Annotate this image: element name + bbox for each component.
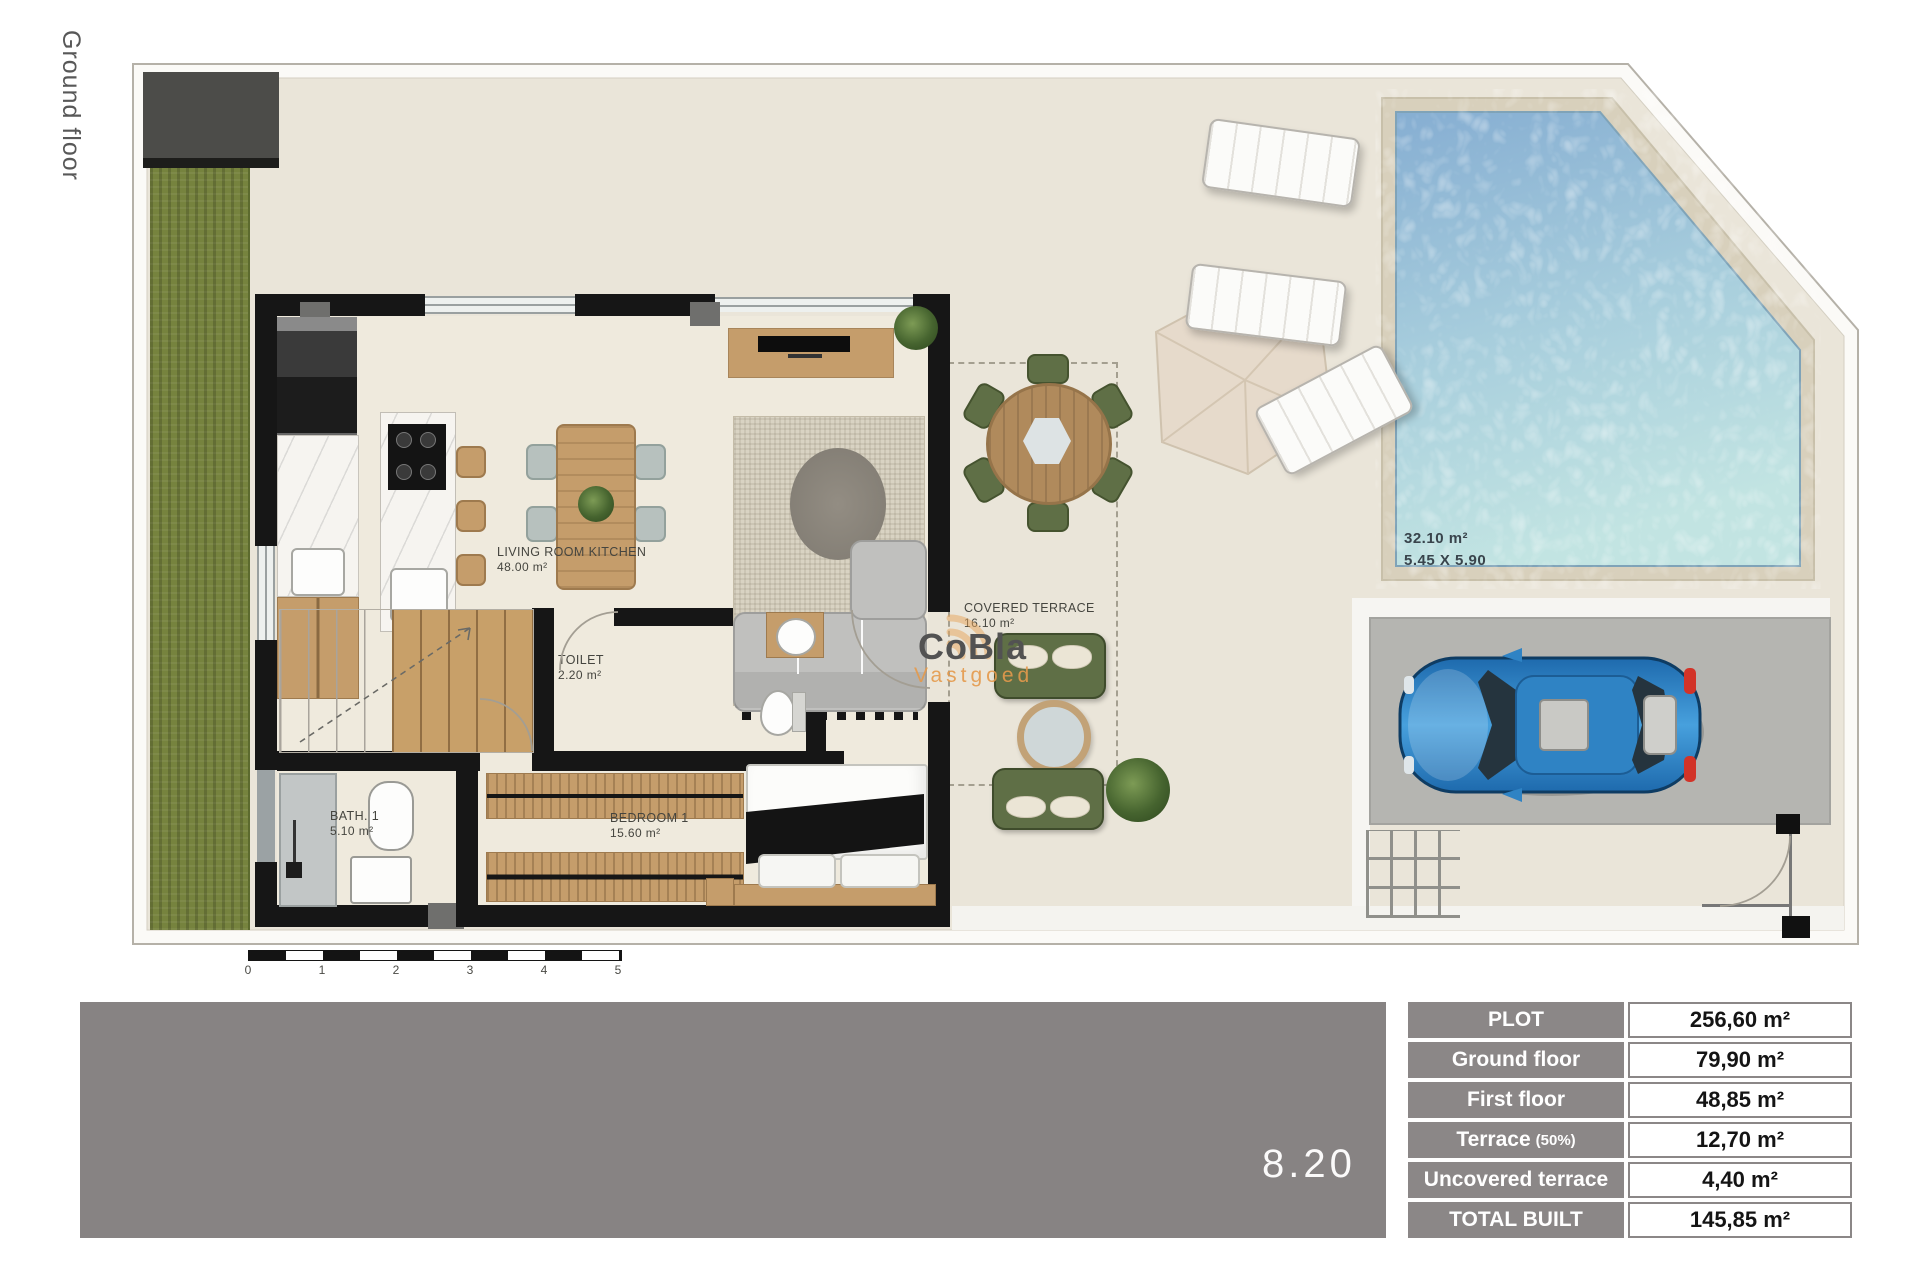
shower-pipe <box>293 820 296 866</box>
shower <box>279 773 337 907</box>
outdoor-stairs <box>1366 830 1460 918</box>
car <box>1400 648 1704 802</box>
gate-post <box>1776 814 1800 834</box>
wc <box>760 690 796 736</box>
watermark-subtitle: Vastgoed <box>914 664 1033 688</box>
table-row-value: 4,40 m² <box>1628 1162 1852 1198</box>
car-rear-glass <box>1644 696 1676 754</box>
room-label-toilet: TOILET 2.20 m² <box>558 652 604 684</box>
room-label-living: LIVING ROOM KITCHEN 48.00 m² <box>497 544 646 576</box>
scale-tick: 4 <box>541 963 548 977</box>
scale-tick: 0 <box>245 963 252 977</box>
floor-title: Ground floor <box>56 30 85 181</box>
scale-tick: 1 <box>319 963 326 977</box>
bath-sink <box>350 856 412 904</box>
plant <box>578 486 614 522</box>
toilet-sink <box>776 618 816 656</box>
floorplan-page: Ground floor LIVING ROOM KITCHEN 48.00 m… <box>0 0 1920 1280</box>
window <box>257 546 275 640</box>
pool-water-texture <box>1396 112 1800 566</box>
bottom-panel: 8.20 <box>80 1002 1386 1238</box>
dining-chair <box>526 444 558 480</box>
table-row-value: 12,70 m² <box>1628 1122 1852 1158</box>
table-row-label: Uncovered terrace <box>1408 1162 1624 1198</box>
table-row-label: PLOT <box>1408 1002 1624 1038</box>
wc-cistern <box>792 692 806 732</box>
dining-chair <box>634 444 666 480</box>
scale-tick: 5 <box>615 963 622 977</box>
pillow <box>758 854 836 888</box>
table-row-value: 48,85 m² <box>1628 1082 1852 1118</box>
wall-segment <box>532 608 554 753</box>
scale-bar <box>248 950 622 961</box>
wall-segment <box>277 751 480 771</box>
cooktop <box>388 424 446 490</box>
terrace-chair <box>1027 354 1069 384</box>
table-row-value: 145,85 m² <box>1628 1202 1852 1238</box>
terrace-chair <box>1027 502 1069 532</box>
kitchen-sink <box>291 548 345 596</box>
stairs <box>279 609 534 753</box>
coffee-table <box>1017 700 1091 774</box>
shower-head <box>286 862 302 878</box>
entry-pad <box>143 72 279 168</box>
tv-stand <box>788 354 822 358</box>
table-row-value: 79,90 m² <box>1628 1042 1852 1078</box>
table-row-label: TOTAL BUILT <box>1408 1202 1624 1238</box>
room-label-bath: BATH. 1 5.10 m² <box>330 808 379 840</box>
dining-chair <box>634 506 666 542</box>
stairs-wood-flight <box>392 610 533 752</box>
gate-line <box>1702 904 1790 907</box>
bar-stool <box>456 500 486 532</box>
outdoor-sofa <box>992 768 1104 830</box>
pool-label: 32.10 m² 5.45 X 5.90 <box>1404 528 1486 572</box>
car-sunroof <box>1540 700 1588 750</box>
sofa <box>733 612 927 712</box>
grass-strip <box>150 158 250 930</box>
bar-stool <box>456 554 486 586</box>
window <box>425 296 575 314</box>
car-taillight <box>1684 668 1696 694</box>
plant <box>1106 758 1170 822</box>
areas-table: PLOT 256,60 m² Ground floor 79,90 m² Fir… <box>1408 1002 1852 1238</box>
gate-post <box>1782 916 1810 938</box>
scale-tick: 2 <box>393 963 400 977</box>
pool-dimensions: 5.45 X 5.90 <box>1404 550 1486 572</box>
plant <box>894 306 938 350</box>
watermark-name: CoBla <box>918 626 1027 668</box>
pillar <box>690 302 720 326</box>
parking-kerb-top <box>1352 598 1830 618</box>
table-row-label: Ground floor <box>1408 1042 1624 1078</box>
nightstand <box>706 878 734 906</box>
bar-stool <box>456 446 486 478</box>
table-row-label: First floor <box>1408 1082 1624 1118</box>
sofa-chaise <box>850 540 927 620</box>
wall-segment <box>255 640 277 770</box>
wall-segment <box>255 294 277 546</box>
table-row-label: Terrace(50%) <box>1408 1122 1624 1158</box>
dining-chair <box>526 506 558 542</box>
oven <box>277 377 357 436</box>
wall-segment <box>456 751 478 927</box>
pool-area: 32.10 m² <box>1404 528 1486 550</box>
room-label-bedroom: BEDROOM 1 15.60 m² <box>610 810 689 842</box>
glass-slider <box>715 297 913 312</box>
wall-segment <box>255 905 950 927</box>
scale-tick: 3 <box>467 963 474 977</box>
pillow <box>840 854 920 888</box>
tv <box>758 336 850 352</box>
plan-number: 8.20 <box>1262 1142 1356 1187</box>
side-door <box>257 770 275 862</box>
car-taillight <box>1684 756 1696 782</box>
wall-segment <box>255 294 425 316</box>
table-row-value: 256,60 m² <box>1628 1002 1852 1038</box>
